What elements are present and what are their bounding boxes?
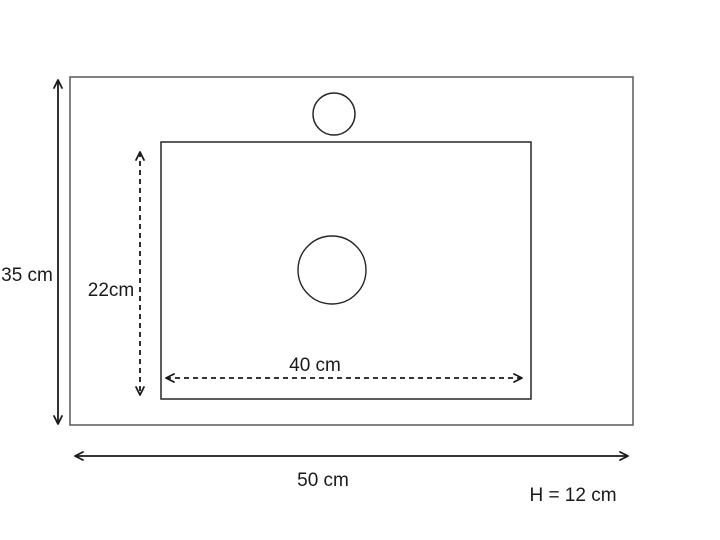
inner-height-label: 22cm (88, 280, 134, 301)
dimension-drawing-svg: 35 cm 22cm 40 cm 50 cm H = 12 cm (0, 0, 720, 540)
outer-height-label: 35 cm (1, 265, 53, 286)
height-note-label: H = 12 cm (529, 485, 616, 506)
drain-hole-circle (298, 236, 366, 304)
diagram-canvas: 35 cm 22cm 40 cm 50 cm H = 12 cm (0, 0, 720, 540)
faucet-hole-circle (313, 93, 355, 135)
inner-width-label: 40 cm (289, 355, 341, 376)
outer-width-label: 50 cm (297, 470, 349, 491)
